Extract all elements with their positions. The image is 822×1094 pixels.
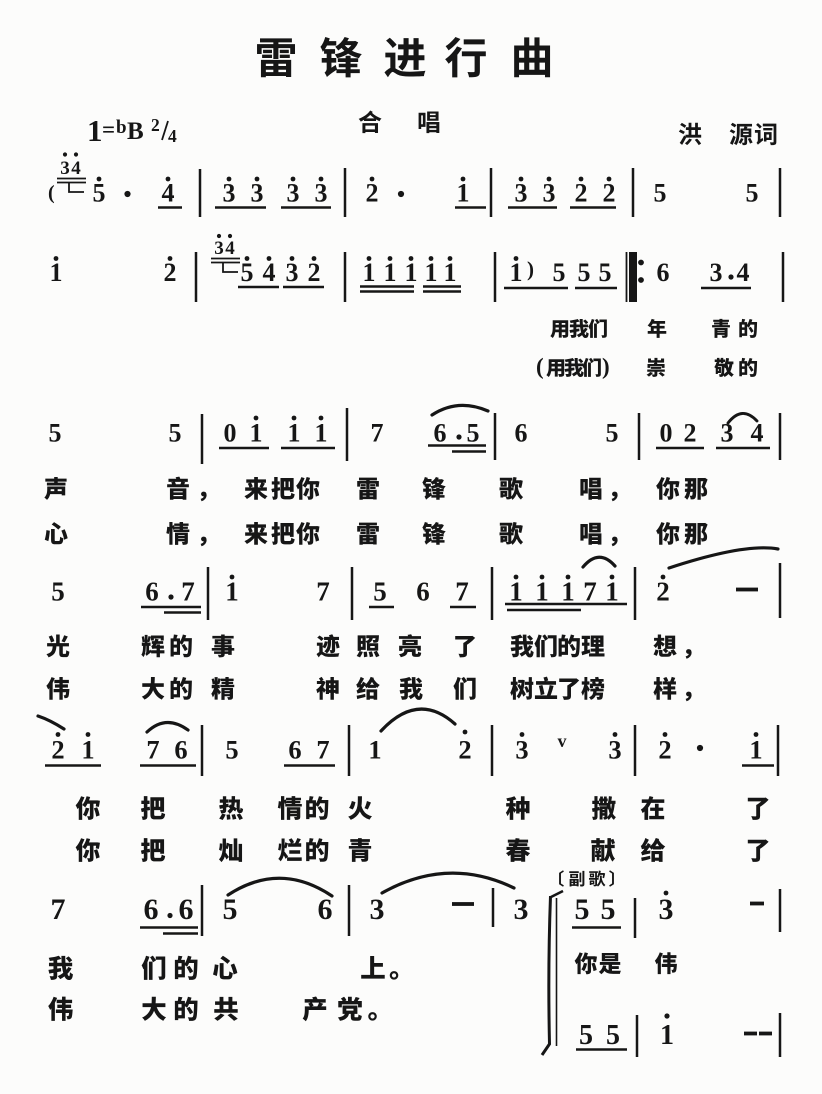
- svg-text:7: 7: [583, 577, 597, 607]
- svg-text:3: 3: [543, 179, 556, 208]
- svg-text:3: 3: [251, 179, 264, 208]
- svg-text:2: 2: [603, 179, 616, 208]
- svg-text:7: 7: [316, 577, 330, 607]
- svg-text:4: 4: [71, 158, 81, 179]
- svg-text:1: 1: [535, 577, 549, 607]
- svg-text:5: 5: [93, 179, 106, 208]
- svg-text:5: 5: [373, 577, 387, 607]
- svg-text:): ): [527, 257, 534, 281]
- svg-text:1: 1: [315, 419, 328, 448]
- svg-text:3: 3: [286, 258, 299, 287]
- svg-text:2: 2: [308, 258, 321, 287]
- svg-text:2: 2: [366, 179, 379, 208]
- svg-text:B: B: [127, 118, 144, 145]
- svg-text:5: 5: [575, 893, 590, 926]
- svg-text:5: 5: [169, 419, 182, 448]
- svg-text:5: 5: [49, 419, 62, 448]
- svg-text:5: 5: [553, 258, 566, 287]
- svg-text:6: 6: [145, 577, 159, 607]
- svg-text:5: 5: [606, 1020, 620, 1051]
- svg-text:3: 3: [287, 179, 300, 208]
- svg-text:6: 6: [416, 577, 430, 607]
- svg-text:1: 1: [605, 577, 619, 607]
- svg-text:6: 6: [174, 735, 187, 765]
- svg-text:3: 3: [370, 893, 385, 926]
- svg-text:2: 2: [656, 577, 670, 607]
- svg-text:4: 4: [263, 258, 276, 287]
- svg-text:3: 3: [515, 735, 528, 765]
- svg-text:1: 1: [288, 419, 301, 448]
- svg-text:7: 7: [316, 735, 329, 765]
- svg-text:1: 1: [561, 577, 575, 607]
- svg-text:2: 2: [151, 115, 160, 135]
- svg-text:3: 3: [659, 893, 674, 926]
- svg-text:3: 3: [515, 179, 528, 208]
- svg-text:1: 1: [509, 577, 523, 607]
- svg-text:5: 5: [746, 179, 759, 208]
- svg-text:2: 2: [51, 735, 64, 765]
- svg-text:6: 6: [657, 258, 670, 287]
- svg-text:1: 1: [425, 258, 438, 287]
- svg-text:5: 5: [223, 893, 238, 926]
- svg-text:1: 1: [444, 258, 457, 287]
- svg-text:7: 7: [371, 419, 384, 448]
- svg-text:=: =: [102, 117, 115, 142]
- svg-text:2: 2: [164, 258, 177, 287]
- svg-text:3: 3: [514, 893, 529, 926]
- svg-text:(: (: [536, 354, 544, 379]
- svg-text:1: 1: [81, 735, 94, 765]
- svg-text:4: 4: [168, 126, 177, 146]
- svg-text:1: 1: [749, 735, 762, 765]
- svg-text:3: 3: [223, 179, 236, 208]
- svg-text:7: 7: [455, 577, 469, 607]
- svg-text:1: 1: [660, 1020, 674, 1051]
- svg-text:1: 1: [405, 258, 418, 287]
- svg-text:5: 5: [241, 258, 254, 287]
- svg-text:5: 5: [51, 577, 65, 607]
- svg-text:5: 5: [467, 419, 480, 448]
- svg-text:2: 2: [658, 735, 671, 765]
- svg-text:5: 5: [654, 179, 667, 208]
- svg-text:1: 1: [250, 419, 263, 448]
- svg-text:5: 5: [579, 1020, 593, 1051]
- svg-text:3: 3: [60, 158, 70, 179]
- svg-text:1: 1: [87, 113, 103, 148]
- svg-text:2: 2: [458, 735, 471, 765]
- svg-text:1: 1: [363, 258, 376, 287]
- svg-text:3: 3: [710, 258, 723, 287]
- svg-text:0: 0: [224, 419, 237, 448]
- svg-text:1: 1: [225, 577, 239, 607]
- svg-text:6: 6: [515, 419, 528, 448]
- svg-text:b: b: [116, 117, 127, 138]
- svg-text:5: 5: [601, 893, 616, 926]
- svg-text:5: 5: [599, 258, 612, 287]
- svg-text:6: 6: [318, 893, 333, 926]
- svg-text:0: 0: [660, 419, 673, 448]
- svg-text:1: 1: [384, 258, 397, 287]
- svg-text:2: 2: [684, 419, 697, 448]
- svg-text:6: 6: [434, 419, 447, 448]
- svg-text:v: v: [558, 731, 567, 751]
- svg-text:1: 1: [510, 258, 523, 287]
- svg-text:4: 4: [737, 258, 750, 287]
- svg-text:1: 1: [368, 735, 381, 765]
- svg-text:6: 6: [144, 893, 159, 926]
- svg-text:5: 5: [225, 735, 238, 765]
- svg-text:3: 3: [315, 179, 328, 208]
- svg-text:3: 3: [608, 735, 621, 765]
- svg-text:6: 6: [288, 735, 301, 765]
- svg-text:7: 7: [146, 735, 159, 765]
- svg-text:7: 7: [51, 893, 66, 926]
- svg-text:1: 1: [50, 258, 63, 287]
- svg-text:4: 4: [225, 238, 235, 259]
- svg-text:5: 5: [578, 258, 591, 287]
- svg-text:2: 2: [575, 179, 588, 208]
- svg-text:4: 4: [162, 179, 175, 208]
- svg-text:6: 6: [179, 893, 194, 926]
- svg-text:1: 1: [457, 179, 470, 208]
- svg-text:4: 4: [751, 419, 764, 448]
- svg-text:): ): [602, 354, 610, 379]
- svg-text:5: 5: [606, 419, 619, 448]
- svg-text:3: 3: [214, 238, 224, 259]
- svg-text:(: (: [48, 182, 55, 204]
- svg-text:7: 7: [181, 577, 195, 607]
